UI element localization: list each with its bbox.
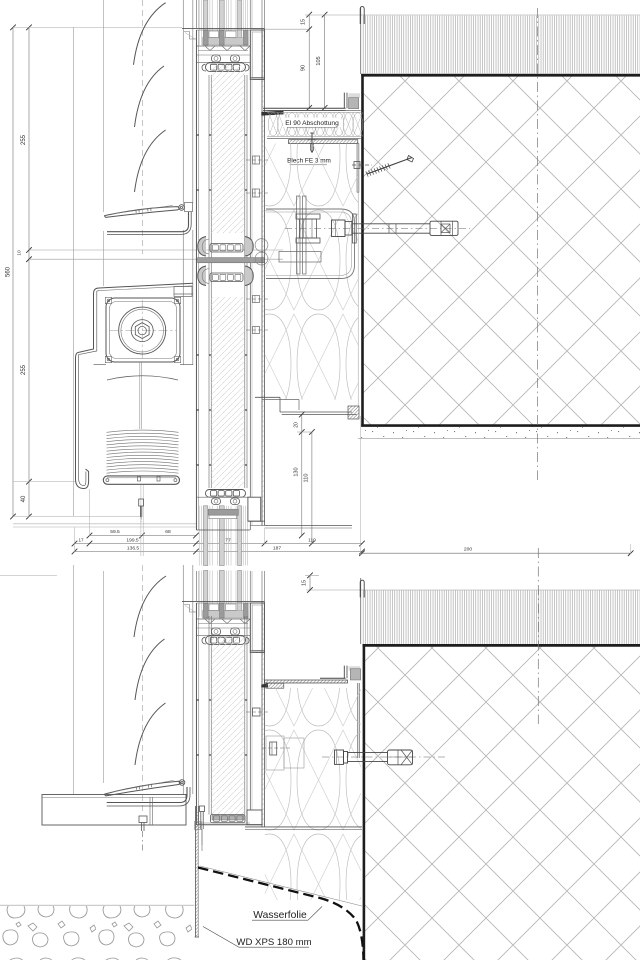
svg-text:40: 40 [21, 495, 27, 502]
svg-text:255: 255 [21, 364, 27, 375]
svg-text:90: 90 [301, 65, 307, 71]
svg-text:20: 20 [294, 422, 300, 428]
svg-text:110: 110 [308, 537, 316, 543]
svg-text:10: 10 [17, 250, 23, 256]
svg-text:200: 200 [464, 547, 472, 553]
svg-text:187: 187 [273, 545, 281, 551]
svg-text:110: 110 [304, 474, 310, 483]
svg-text:EI 90 Abschottung: EI 90 Abschottung [285, 120, 339, 127]
svg-text:68: 68 [165, 529, 171, 535]
svg-text:130: 130 [293, 467, 299, 476]
svg-text:WD XPS 180 mm: WD XPS 180 mm [236, 937, 311, 948]
svg-text:59.5: 59.5 [110, 529, 120, 535]
svg-text:136.5: 136.5 [127, 545, 140, 551]
svg-text:199.5: 199.5 [126, 537, 139, 543]
svg-text:15: 15 [301, 19, 307, 25]
svg-text:15: 15 [301, 580, 307, 586]
svg-text:560: 560 [6, 266, 12, 277]
svg-text:255: 255 [21, 134, 27, 145]
svg-text:Wasserfolie: Wasserfolie [253, 910, 307, 921]
svg-text:105: 105 [316, 56, 322, 65]
svg-text:17: 17 [78, 537, 84, 542]
